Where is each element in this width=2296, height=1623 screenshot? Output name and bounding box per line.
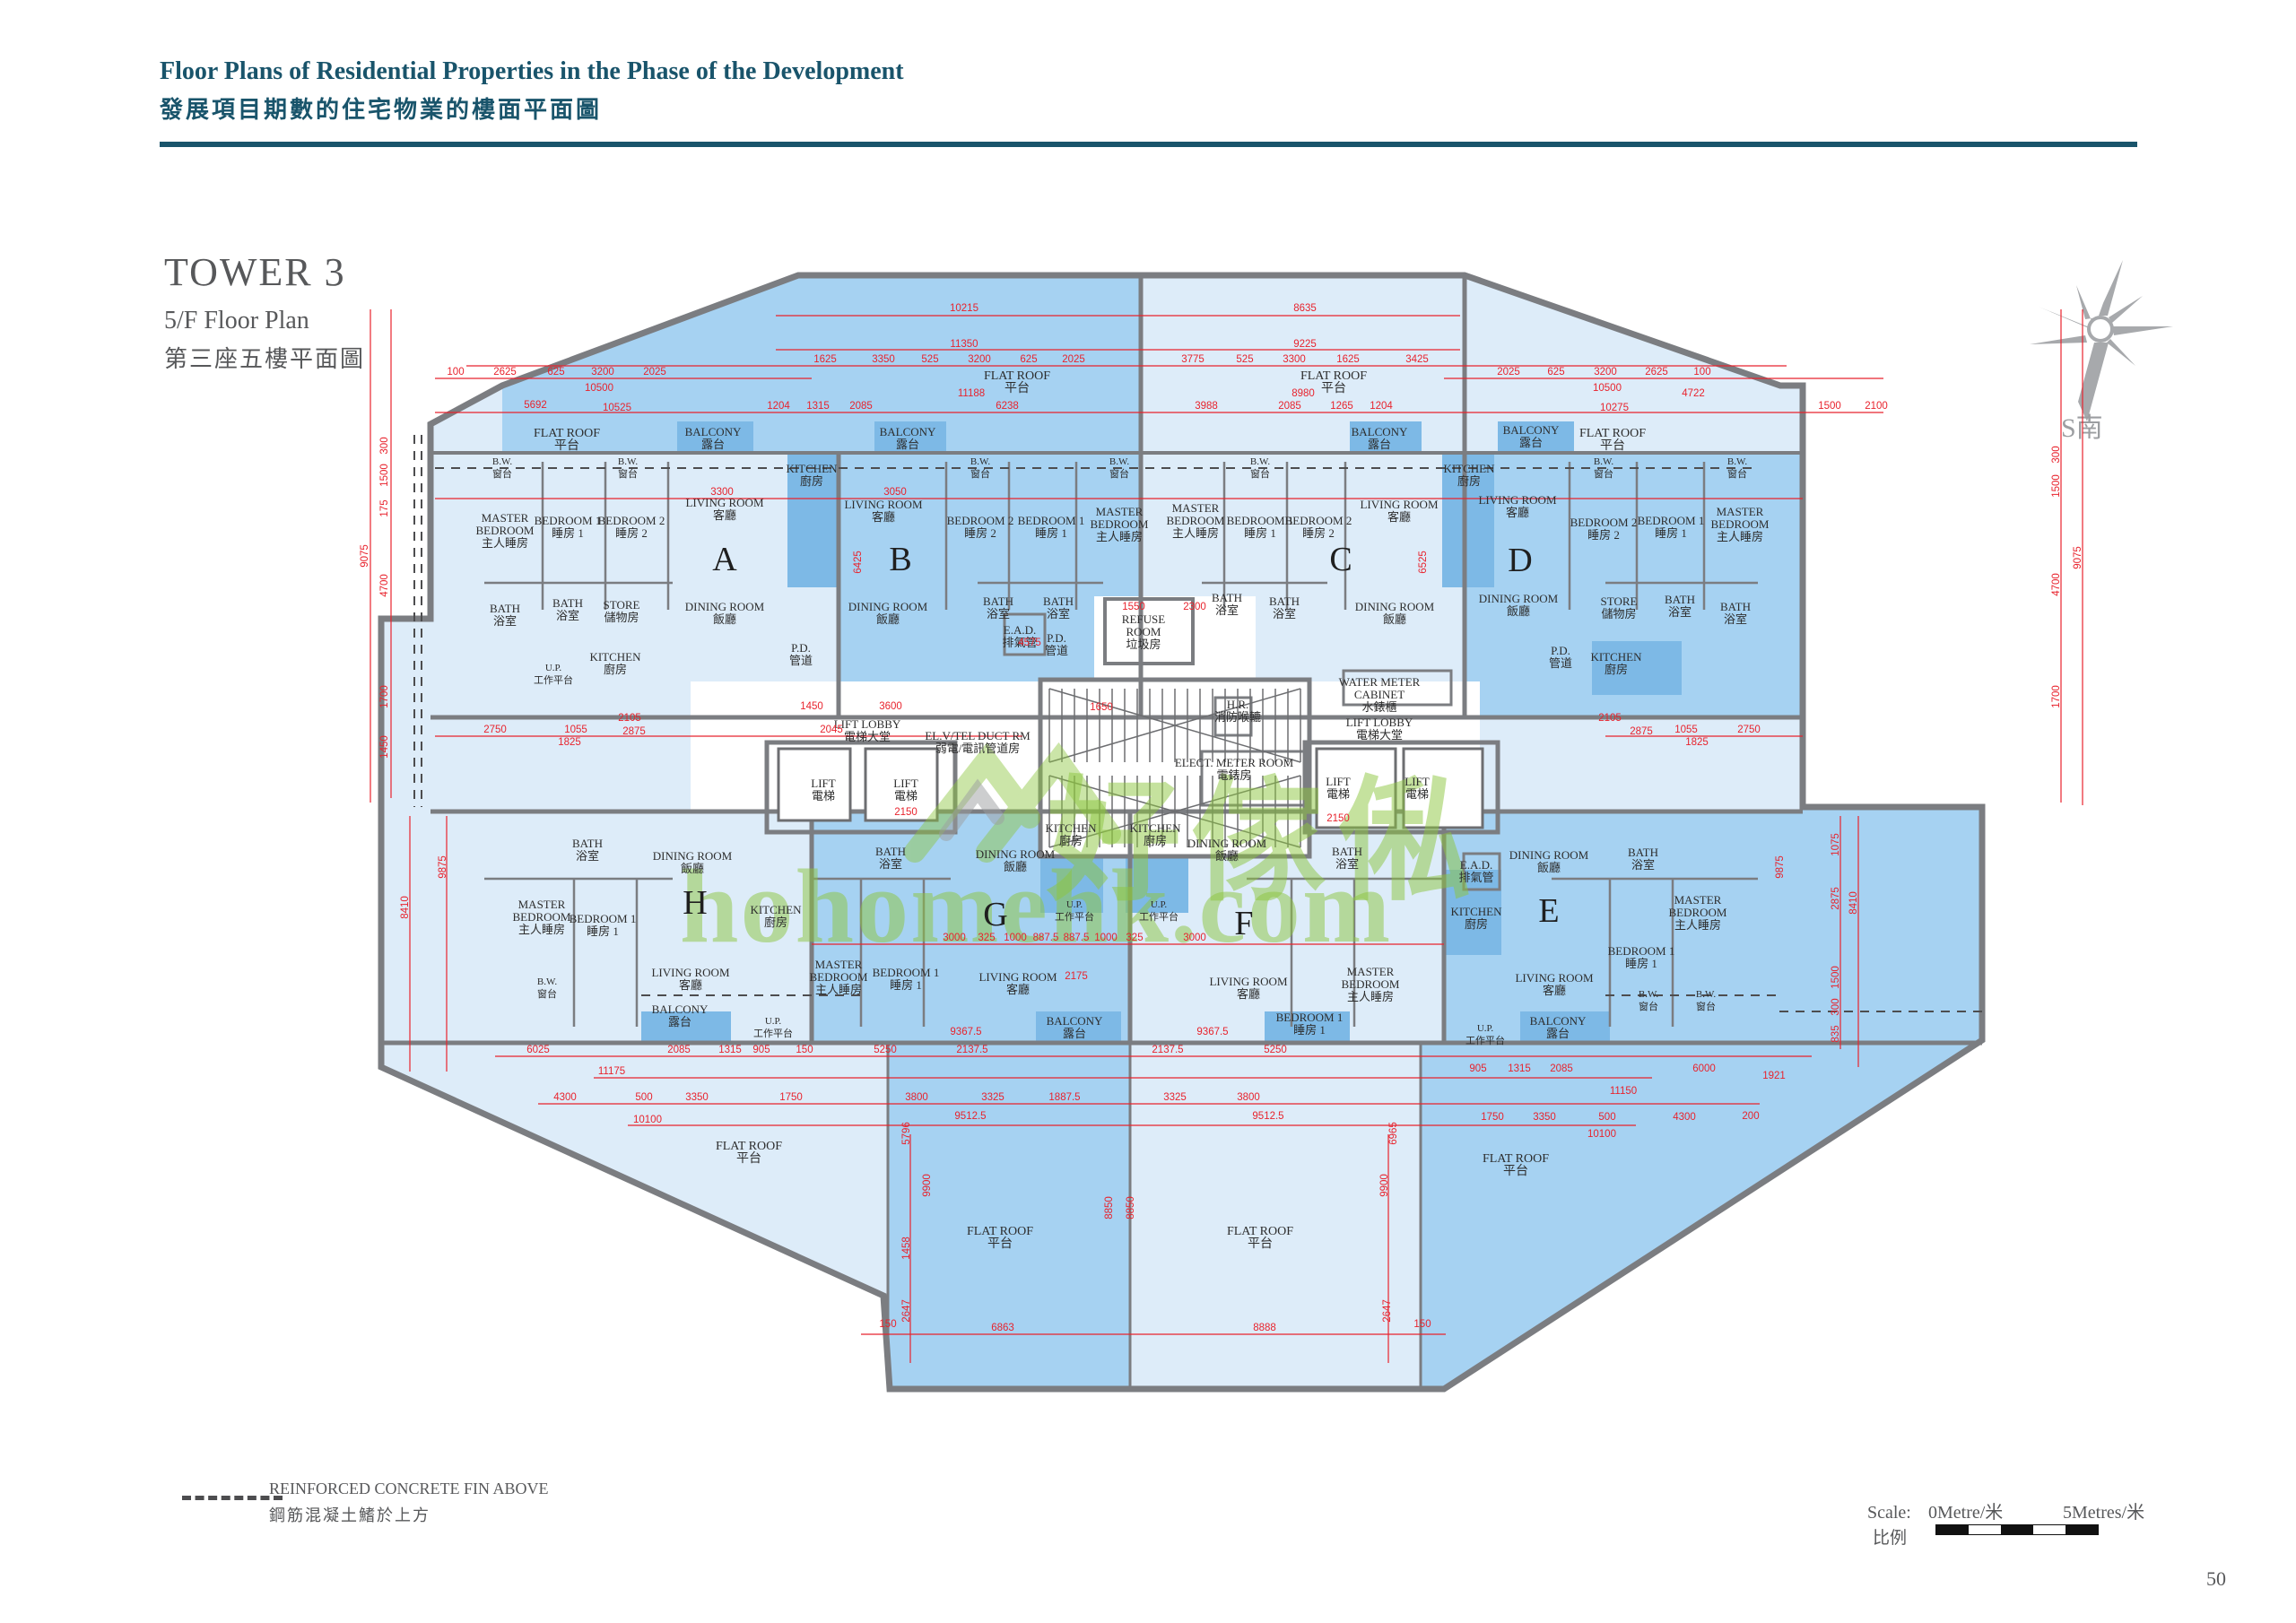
dimension-label: 300 [1831,998,1841,1015]
dimension-label: 2085 [1550,1063,1573,1074]
dimension-label: 4700 [379,574,390,597]
room-label: MASTERBEDROOM主人睡房 [1166,501,1224,540]
dimension-label: 1055 [564,725,587,735]
dimension-label: 525 [1236,354,1253,365]
room-label: BATH浴室 [1665,593,1695,619]
core-label: E.A.D.排氣管 [1458,858,1493,884]
dimension-label: 300 [2051,446,2062,463]
dimension-label: 1265 [1330,401,1353,412]
flat-letter-G: G [983,896,1007,933]
dimension-label: 8410 [1848,891,1859,915]
dimension-label: 10100 [1587,1129,1616,1140]
dimension-label: 9900 [922,1174,933,1197]
room-label: MASTERBEDROOM主人睡房 [1710,505,1769,543]
dimension-label: 150 [1413,1319,1431,1330]
dimension-label: 2105 [618,713,641,724]
dimension-label: 10275 [1600,403,1629,413]
dimension-label: 9075 [2073,546,2083,569]
dimension-label: 2647 [901,1299,912,1323]
flat-letter-H: H [683,884,707,922]
room-label: BATH浴室 [1212,591,1242,617]
dimension-label: 100 [1693,367,1710,378]
dimension-label: 3300 [1283,354,1306,365]
dimension-label: 6425 [853,551,864,574]
dimension-label: 2105 [1598,713,1622,724]
dimension-label: 1000 [1094,933,1118,943]
dimension-label: 11350 [950,339,978,350]
dimension-label: 8980 [1291,388,1315,399]
dimension-label: 3988 [1195,401,1218,412]
dimension-label: 3200 [968,354,991,365]
dimension-label: 1315 [718,1045,742,1055]
dimension-label: 625 [1547,367,1564,378]
dimension-label: 9075 [360,544,370,568]
flat-letter-D: D [1508,542,1532,579]
dimension-label: 2875 [622,726,646,737]
dimension-label: 5692 [524,400,547,411]
dimension-label: 1315 [1508,1063,1531,1074]
dimension-label: 10100 [633,1115,662,1125]
dimension-label: 9367.5 [1196,1027,1228,1037]
dimension-label: 9225 [1293,339,1317,350]
dimension-label: 2085 [849,401,873,412]
dimension-label: 8850 [1126,1196,1136,1219]
dimension-label: 2100 [1865,401,1888,412]
dimension-label: 3000 [943,933,966,943]
dimension-label: 1204 [767,401,790,412]
room-label: MASTERBEDROOM主人睡房 [1090,505,1148,543]
dimension-label: 4300 [1673,1112,1696,1123]
room-label: BATH浴室 [1628,846,1658,872]
flat-letter-A: A [712,541,737,578]
core-label: LIFT電梯 [1326,775,1351,801]
dimension-label: 11175 [598,1066,625,1077]
dimension-label: 5250 [874,1045,897,1055]
dimension-label: 10500 [585,383,613,394]
dimension-label: 1921 [1762,1071,1786,1081]
dimension-label: 1887.5 [1048,1092,1080,1103]
floor-title-zh: 第三座五樓平面圖 [164,341,365,374]
room-label: BATH浴室 [875,845,906,871]
dimension-label: 1825 [1685,737,1709,748]
dimension-label: 1650 [1090,702,1113,713]
room-label: BATH浴室 [552,596,583,622]
dimension-label: 2750 [1737,725,1761,735]
room-label: BATH浴室 [1269,595,1300,621]
scale-five-label: 5Metres/米 [2063,1497,2144,1523]
core-label: LIFT電梯 [893,777,918,803]
legend-fin-en: REINFORCED CONCRETE FIN ABOVE [269,1480,549,1498]
room-label: BATH浴室 [1043,595,1074,621]
dimension-label: 1825 [558,737,581,748]
dimension-label: 2025 [643,367,666,378]
room-label: MASTERBEDROOM主人睡房 [809,958,867,996]
dimension-label: 10215 [950,303,978,314]
dimension-label: 3350 [872,354,895,365]
dimension-label: 2175 [1065,971,1088,982]
room-label: BATH浴室 [490,602,520,628]
dimension-label: 8410 [400,896,411,919]
dimension-label: 2085 [667,1045,691,1055]
scale-zero-label: 0Metre/米 [1928,1497,2003,1523]
room-label: BATH浴室 [1332,845,1362,871]
dimension-label: 3050 [883,487,907,498]
dimension-label: 905 [752,1045,770,1055]
room-label: BATH浴室 [1720,600,1751,626]
dimension-label: 2750 [483,725,507,735]
dimension-label: 3325 [1163,1092,1187,1103]
dimension-label: 8635 [1293,303,1317,314]
floor-plan-drawing: 好傢俬 hohomehk.com AMASTERBEDROOM主人睡房BEDRO… [359,260,2197,1417]
dimension-label: 1625 [1336,354,1360,365]
dimension-label: 6525 [1418,551,1429,574]
dimension-label: 10525 [603,403,631,413]
dimension-label: 3325 [981,1092,1004,1103]
dimension-label: 1458 [901,1237,912,1260]
core-label: P.D.管道 [789,641,813,667]
dimension-label: 905 [1469,1063,1486,1074]
dimension-label: 9512.5 [1252,1111,1283,1122]
dimension-label: 2137.5 [1152,1045,1183,1055]
dimension-label: 1700 [2051,685,2062,708]
room-label: MASTERBEDROOM主人睡房 [475,511,534,550]
dimension-label: 2025 [1497,367,1520,378]
dimension-label: 3000 [1183,933,1206,943]
core-label: LIFT電梯 [1405,775,1430,801]
core-label: P.D.管道 [1549,644,1572,670]
dimension-label: 887.5 [1064,933,1090,943]
dimension-label: 9875 [1775,855,1786,879]
dimension-label: 1450 [379,735,390,759]
room-label: MASTERBEDROOM主人睡房 [1341,965,1399,1003]
flat-letter-F: F [1234,905,1253,942]
page-title-en: Floor Plans of Residential Properties in… [160,57,904,86]
dimension-label: 1500 [1831,966,1841,989]
dimension-label: 3300 [710,487,734,498]
room-label: BATH浴室 [983,595,1013,621]
dimension-label: 6000 [1692,1063,1716,1074]
dimension-label: 3600 [879,701,902,712]
dimension-label: 2300 [1183,602,1206,612]
dimension-label: 1625 [813,354,837,365]
dimension-label: 2625 [1645,367,1668,378]
dimension-label: 1450 [800,701,823,712]
dimension-label: 9900 [1379,1174,1390,1197]
dimension-label: 3200 [591,367,614,378]
dimension-label: 3775 [1181,354,1205,365]
core-label: REFUSEROOM垃圾房 [1122,612,1165,651]
room-label: STORE儲物房 [1601,595,1638,621]
dimension-label: 4700 [2051,573,2062,596]
dimension-label: 4300 [553,1092,577,1103]
dimension-label: 6238 [996,401,1019,412]
dimension-label: 835 [1831,1025,1841,1042]
room-label: BATH浴室 [572,837,603,863]
dimension-label: 8888 [1253,1323,1276,1333]
dimension-label: 3800 [905,1092,928,1103]
dimension-label: 200 [1742,1111,1759,1122]
dimension-label: 1750 [1481,1112,1504,1123]
dimension-label: 887.5 [1033,933,1059,943]
dimension-label: 10500 [1593,383,1622,394]
dimension-label: 5250 [1264,1045,1287,1055]
legend-fin-zh: 鋼筋混凝土鰭於上方 [269,1503,430,1526]
dimension-label: 3425 [1405,354,1429,365]
dimension-label: 3350 [685,1092,709,1103]
dimension-label: 2137.5 [956,1045,987,1055]
room-label: MASTERBEDROOM主人睡房 [512,898,570,936]
dimension-label: 175 [379,499,390,516]
dimension-label: 2875 [1630,726,1653,737]
dimension-label: 2150 [894,807,918,818]
header-rule [160,142,2137,147]
dimension-label: 2875 [1831,887,1841,910]
dimension-label: 1055 [1674,725,1698,735]
dimension-label: 625 [1020,354,1037,365]
dimension-label: 5796 [901,1122,912,1145]
core-label: P.D.管道 [1045,631,1068,657]
dimension-label: 2625 [493,367,517,378]
dimension-label: 1075 [1831,833,1841,856]
dimension-label: 150 [879,1319,896,1330]
dimension-label: 1500 [1818,401,1841,412]
page-number: 50 [2206,1567,2226,1591]
dimension-label: 2647 [1382,1299,1393,1323]
dimension-label: 525 [921,354,938,365]
dimension-label: 1700 [379,685,390,708]
dimension-label: 6025 [526,1045,550,1055]
dimension-label: 500 [1598,1112,1615,1123]
dimension-label: 325 [978,933,995,943]
floor-title-en: 5/F Floor Plan [164,307,309,335]
page-title-zh: 發展項目期數的住宅物業的樓面平面圖 [160,91,602,125]
scale-label-en: Scale: [1867,1503,1911,1523]
dimension-label: 11150 [1610,1086,1637,1097]
room-label: MASTERBEDROOM主人睡房 [1668,893,1726,932]
dimension-label: 625 [547,367,564,378]
dimension-label: 6863 [991,1323,1014,1333]
dimension-label: 1000 [1004,933,1027,943]
dimension-label: 2150 [1326,813,1350,824]
dimension-label: 3350 [1533,1112,1556,1123]
dimension-label: 1550 [1122,602,1145,612]
dimension-label: 9512.5 [954,1111,986,1122]
dimension-label: 4722 [1682,388,1705,399]
flat-letter-C: C [1329,541,1352,578]
dimension-label: 9367.5 [950,1027,981,1037]
dimension-label: 300 [379,437,390,454]
dimension-label: 1500 [2051,474,2062,498]
dimension-label: 1500 [379,464,390,487]
legend-dashed-line [182,1496,283,1500]
dimension-label: 325 [1126,933,1143,943]
dimension-label: 1204 [1370,401,1393,412]
scale-label-zh: 比例 [1873,1524,1907,1549]
dimension-label: 4575 [1018,638,1041,648]
dimension-label: 3200 [1594,367,1617,378]
flat-letter-E: E [1538,892,1559,930]
dimension-label: 150 [796,1045,813,1055]
tower-title: TOWER 3 [164,249,346,295]
dimension-label: 3800 [1237,1092,1260,1103]
dimension-label: 500 [635,1092,652,1103]
dimension-label: 100 [447,367,464,378]
dimension-label: 11188 [958,388,985,399]
scale-bar [1935,1524,2099,1535]
dimension-label: 1315 [806,401,830,412]
core-label: EL.V/TEL DUCT RM弱電/電訊管道房 [925,729,1031,755]
dimension-label: 8850 [1104,1196,1115,1219]
flat-letter-B: B [889,541,911,578]
brochure-page: { "header": { "title_en": "Floor Plans o… [0,0,2296,1623]
dimension-label: 6965 [1388,1122,1399,1145]
dimension-label: 2085 [1278,401,1301,412]
core-label: LIFT電梯 [811,777,836,803]
dimension-label: 1750 [779,1092,803,1103]
dimension-label: 9875 [438,855,448,879]
dimension-label: 2025 [1062,354,1085,365]
dimension-label: 2045 [820,725,843,735]
room-label: STORE儲物房 [604,598,640,624]
